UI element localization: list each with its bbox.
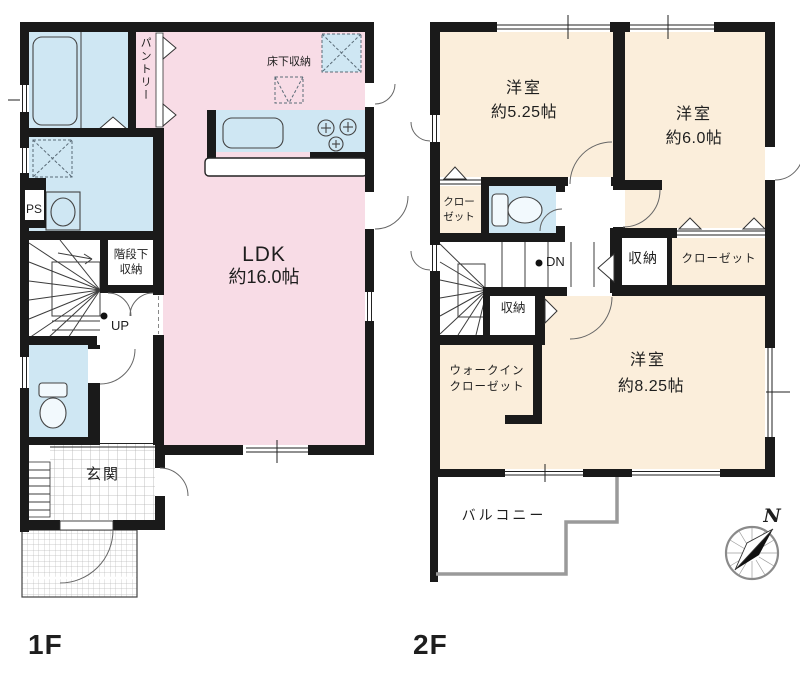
compass-needle-light bbox=[735, 529, 773, 570]
up-marker-dot bbox=[101, 313, 108, 320]
toilet2-fixture bbox=[492, 194, 542, 226]
kitchen-counter bbox=[205, 110, 367, 176]
entrance-side-door-arc bbox=[160, 468, 188, 496]
storage-lower-label: 収納 bbox=[500, 302, 525, 316]
pantry-label: パントリー bbox=[139, 37, 151, 132]
walkin-floor bbox=[430, 343, 545, 469]
hall-door-arc bbox=[100, 349, 135, 384]
bedroom2-label: 洋室 bbox=[676, 106, 712, 124]
walkin-closet-label2: クローゼット bbox=[450, 381, 525, 394]
bedroom1-size-label: 約5.25帖 bbox=[491, 104, 557, 122]
stairs-1f bbox=[29, 240, 100, 338]
floor2-plan bbox=[411, 15, 800, 582]
closet-small-label: クロー bbox=[443, 197, 475, 209]
under-stairs-storage-label2: 収納 bbox=[120, 264, 143, 277]
exterior-door-arc bbox=[375, 196, 408, 229]
floor1-plan bbox=[8, 22, 408, 597]
closet-small-label2: ゼット bbox=[443, 212, 475, 224]
floor2-title: 2F bbox=[413, 630, 448, 661]
compass-north-label: N bbox=[763, 506, 780, 527]
bathroom-floor bbox=[29, 32, 128, 128]
bedroom3-label: 洋室 bbox=[630, 352, 666, 370]
counter-table bbox=[205, 158, 367, 176]
closet-small-floor bbox=[440, 186, 481, 233]
floor1-title: 1F bbox=[28, 630, 63, 661]
storage-hall-label: 収納 bbox=[628, 251, 658, 266]
balcony-railing bbox=[436, 477, 617, 574]
compass-icon bbox=[726, 527, 778, 579]
exterior-window-arc bbox=[411, 122, 430, 141]
bedroom1-label: 洋室 bbox=[506, 80, 542, 98]
front-door-slab bbox=[60, 521, 113, 530]
floorplan-page: LDK 約16.0帖 パントリー 床下収納 階段下 収納 UP PS 玄関 1F… bbox=[0, 0, 800, 674]
washroom-floor bbox=[29, 137, 153, 231]
floorplan-drawing bbox=[0, 0, 800, 674]
dn-marker-dot bbox=[536, 260, 543, 267]
ldk-label: LDK bbox=[242, 243, 286, 266]
pipe-space-label: PS bbox=[26, 203, 42, 216]
dn-label: DN bbox=[546, 255, 565, 269]
ldk-size-label: 約16.0帖 bbox=[228, 268, 299, 288]
up-label: UP bbox=[111, 319, 129, 333]
exterior-window-arc bbox=[775, 152, 800, 180]
storage-door-leaf bbox=[598, 254, 614, 282]
balcony-label: バルコニー bbox=[462, 508, 547, 523]
storage-double-door-arc bbox=[108, 293, 131, 316]
entrance-label: 玄関 bbox=[86, 467, 120, 484]
closet-bedroom2-label: クローゼット bbox=[682, 253, 757, 266]
porch-tile bbox=[22, 530, 137, 597]
under-stairs-storage-label: 階段下 bbox=[114, 249, 149, 262]
storage-double-door-arc bbox=[130, 293, 153, 316]
bedroom3-size-label: 約8.25帖 bbox=[618, 378, 684, 396]
bedroom2-size-label: 約6.0帖 bbox=[666, 130, 723, 148]
underfloor-storage-label: 床下収納 bbox=[267, 56, 311, 68]
exterior-window-arc bbox=[411, 251, 430, 270]
walkin-closet-label: ウォークイン bbox=[450, 365, 525, 378]
toilet1-fixture bbox=[39, 383, 67, 428]
ldk-floor bbox=[163, 32, 365, 445]
exterior-door-arc bbox=[375, 84, 395, 104]
